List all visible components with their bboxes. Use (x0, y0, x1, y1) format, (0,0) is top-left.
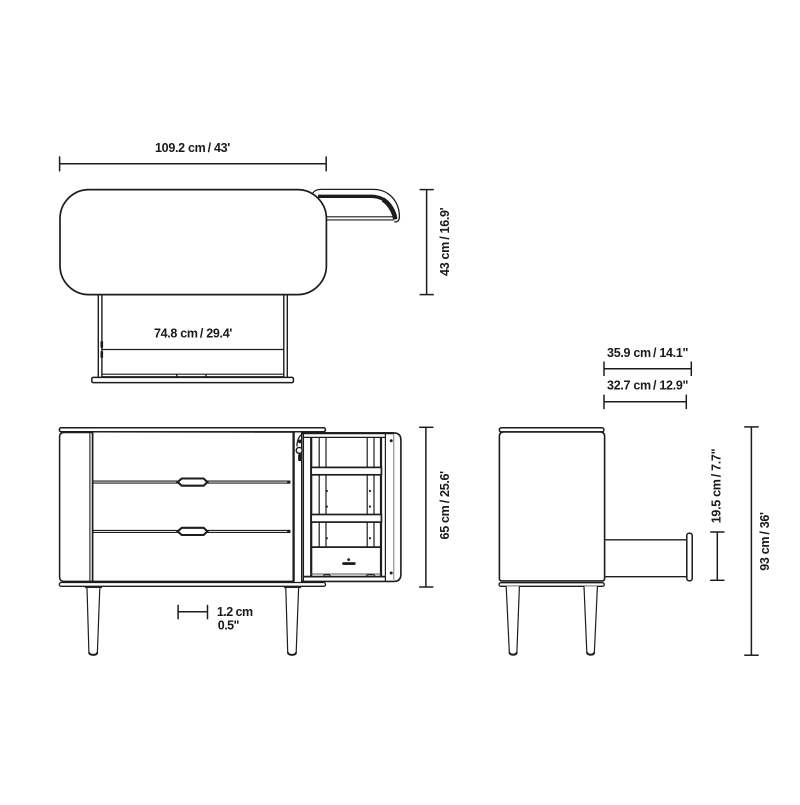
svg-text:0.5": 0.5" (218, 618, 240, 632)
svg-text:32.7 cm / 12.9": 32.7 cm / 12.9" (607, 378, 688, 392)
svg-text:43 cm / 16.9': 43 cm / 16.9' (438, 207, 452, 276)
svg-text:1.2 cm: 1.2 cm (217, 605, 253, 619)
svg-text:93 cm / 36': 93 cm / 36' (758, 512, 772, 571)
svg-text:35.9 cm / 14.1": 35.9 cm / 14.1" (607, 346, 688, 360)
svg-text:19.5 cm / 7.7": 19.5 cm / 7.7" (709, 448, 723, 523)
svg-text:109.2 cm / 43': 109.2 cm / 43' (155, 141, 230, 155)
svg-text:65 cm / 25.6': 65 cm / 25.6' (438, 471, 452, 540)
svg-text:74.8 cm / 29.4': 74.8 cm / 29.4' (154, 326, 232, 340)
